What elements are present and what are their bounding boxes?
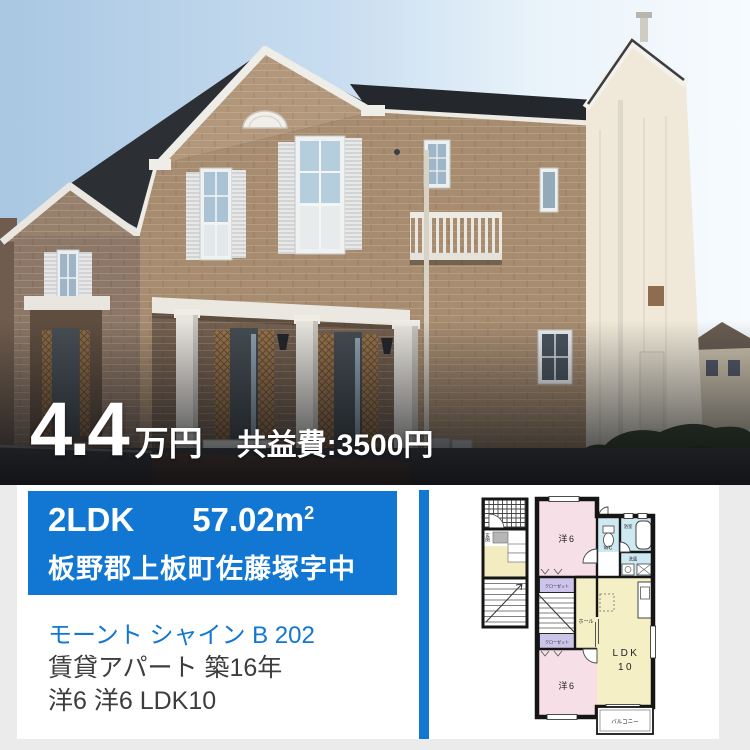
vent-pipe: [640, 16, 648, 42]
fp-closet-top-label: クローゼット: [545, 583, 569, 589]
rent-price: 4.4: [30, 392, 127, 468]
floorplan-image[interactable]: 玄関: [448, 486, 710, 738]
fp-entrance-block: 玄関: [483, 499, 527, 627]
maintenance-fee: 共益費:3500円: [237, 420, 434, 464]
balcony: [410, 212, 502, 265]
listing-card[interactable]: 2LDK 57.02m2 板野郡上板町佐藤塚字中 モーント シャイン B 202…: [17, 485, 719, 739]
layout-area-line: 2LDK 57.02m2: [48, 501, 314, 539]
fp-wc-label: WC: [604, 546, 613, 552]
divider-bar: [419, 490, 429, 739]
fp-room-bottom-label: 洋6: [558, 680, 575, 691]
window-right: [278, 136, 362, 254]
price-overlay: 4.4 万円 共益費:3500円: [30, 392, 433, 468]
room-composition: 洋6 洋6 LDK10: [48, 681, 216, 717]
fp-hall-label: ホール: [578, 619, 593, 625]
fp-ldk-label: LDK: [613, 648, 640, 659]
layout-type: 2LDK: [48, 501, 134, 539]
rent-price-unit: 万円: [135, 416, 203, 465]
left-porch-beam: [24, 296, 110, 310]
vent-hood: [648, 286, 664, 306]
security-light: [394, 149, 400, 155]
fp-entrance-label: 玄関: [485, 532, 491, 544]
building-type-age: 賃貸アパート 築16年: [48, 648, 282, 684]
fp-ldk-num: 10: [618, 662, 634, 673]
window-small-upper: [540, 168, 558, 212]
floor-area: 57.02m2: [192, 501, 314, 539]
address: 板野郡上板町佐藤塚字中: [48, 547, 356, 586]
fp-bath-label: 浴室: [624, 523, 633, 530]
spec-box: 2LDK 57.02m2 板野郡上板町佐藤塚字中: [28, 491, 397, 595]
fp-balcony-label: バルコニー: [611, 719, 638, 726]
fp-closet-bottom-label: クローゼット: [545, 639, 569, 645]
fp-wash-label: 洗面: [629, 556, 638, 563]
property-name-link[interactable]: モーント シャイン B 202: [48, 615, 315, 650]
window-center: [186, 168, 246, 260]
property-photo[interactable]: 4.4 万円 共益費:3500円: [0, 0, 750, 485]
fp-room-top-label: 洋6: [558, 533, 575, 544]
